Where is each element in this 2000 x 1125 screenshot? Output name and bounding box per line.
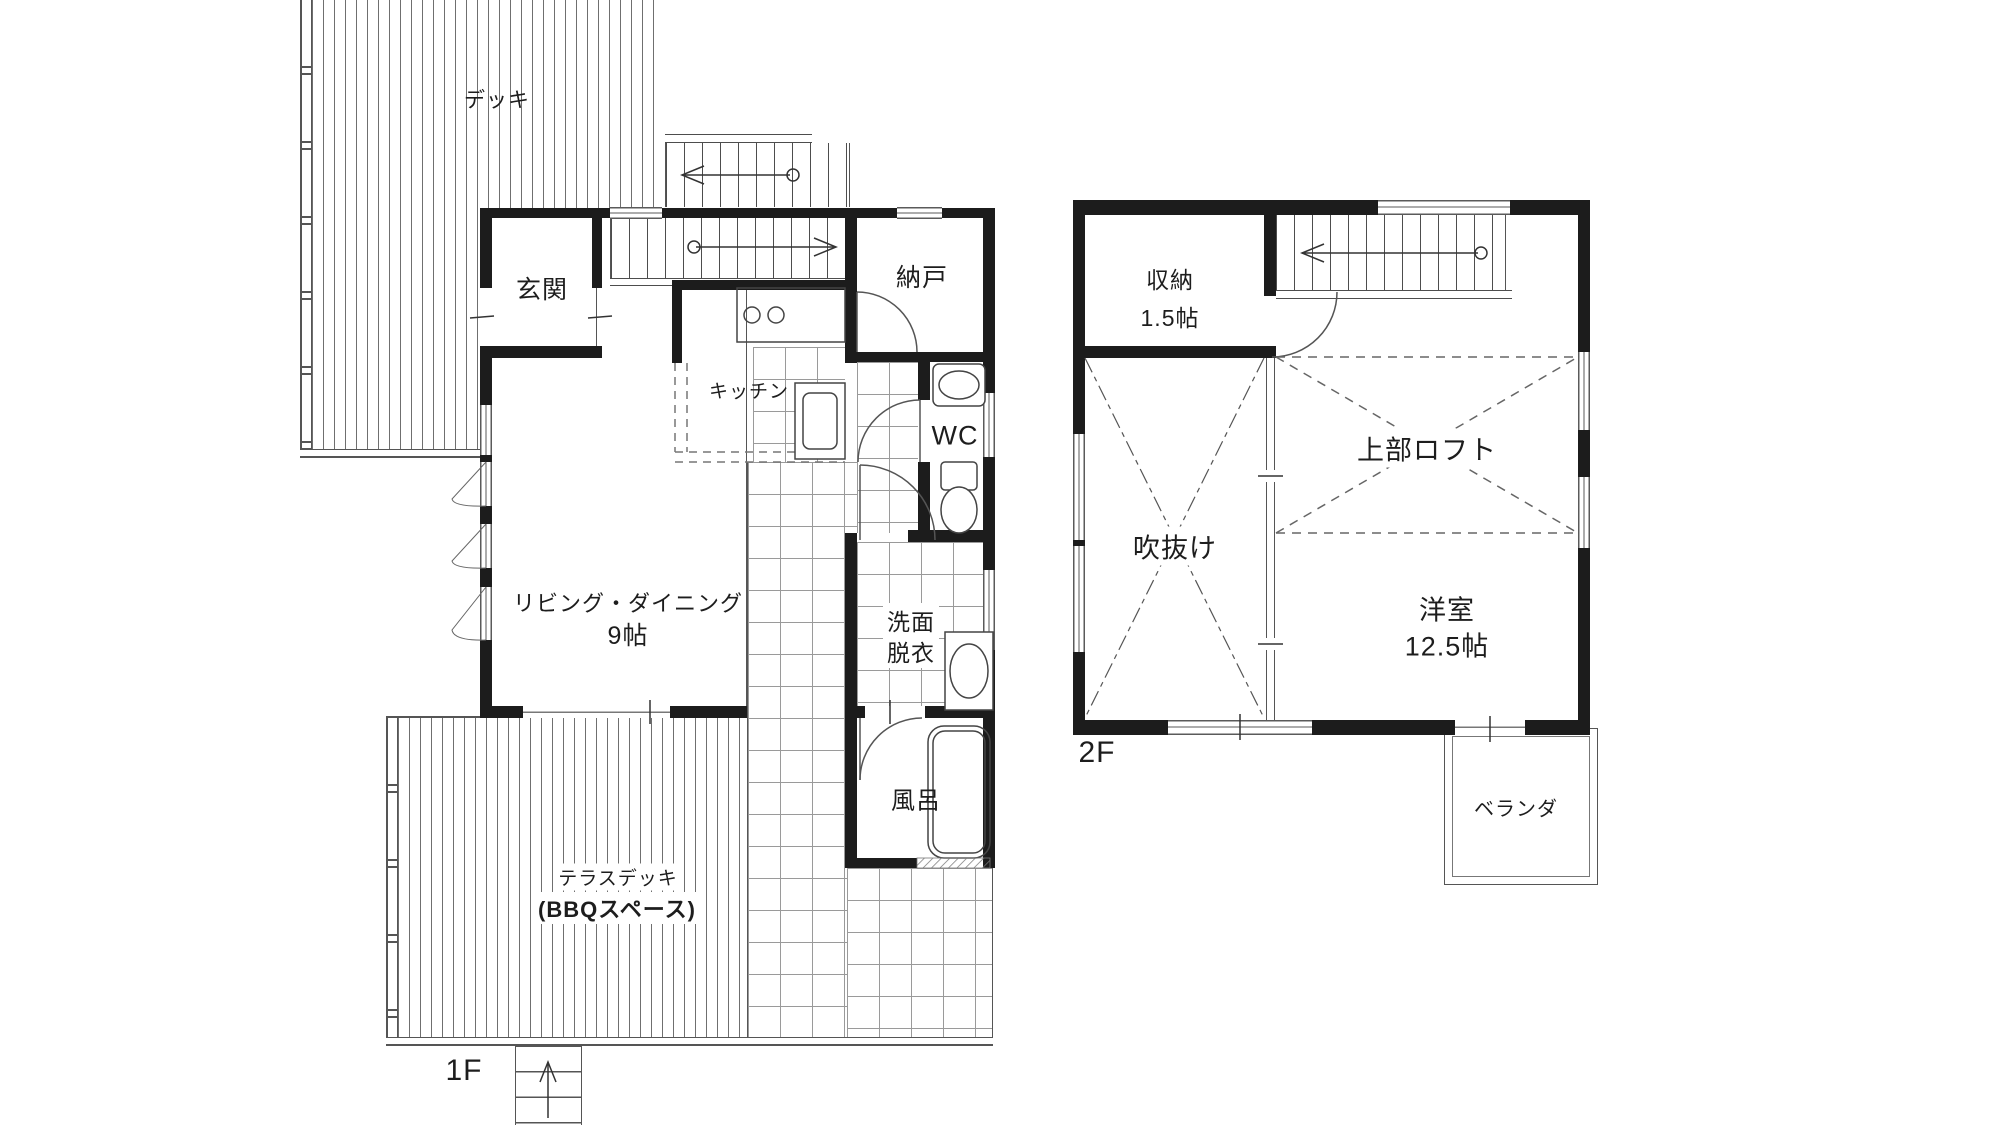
floor-label-2f: 2F [1078,736,1115,770]
door-arc-nando [857,292,917,352]
window-swing-1 [452,462,486,506]
toilet-bowl [941,487,977,533]
floor-plan-canvas: デッキ 玄関 納戸 キッチン WC リビング・ダイニング 9帖 洗面 脱衣 風呂… [0,0,2000,1125]
floor-label-1f: 1F [445,1054,482,1088]
room-label-kitchen: キッチン [709,377,789,404]
room-label-living-size: 9帖 [608,616,649,652]
room-label-washroom-2: 脱衣 [883,634,939,668]
room-label-closet-size: 1.5帖 [1141,299,1200,333]
window-swing-3 [452,587,486,640]
kitchen-burner-1 [744,307,760,323]
room-label-bedroom-size: 12.5帖 [1405,625,1490,664]
room-label-void: 吹抜け [1129,527,1221,566]
window-swing-2 [452,524,486,568]
symbol-overlay [0,0,2000,1125]
room-label-genkan: 玄関 [516,270,568,306]
room-label-loft: 上部ロフト [1353,429,1501,468]
door-arc-2f-stair [1272,292,1337,357]
kitchen-counter [737,288,845,342]
room-label-veranda: ベランダ [1474,793,1558,822]
room-label-wc: WC [932,421,979,452]
door-arc-bath [860,718,922,780]
door-arc-washroom [860,465,935,540]
room-label-deck: デッキ [464,84,530,114]
tick-genkan-right [588,316,612,318]
room-label-closet: 収納 [1146,261,1194,295]
room-label-nando: 納戸 [896,258,948,294]
room-label-bath: 風呂 [891,781,941,816]
room-label-washroom-1: 洗面 [883,603,939,637]
door-arc-wc [858,400,920,462]
room-label-terrace-2: (BBQスペース) [534,892,700,924]
toilet-tank [941,462,977,490]
room-label-living: リビング・ダイニング [513,586,743,618]
room-label-terrace-1: テラスデッキ [554,864,682,891]
room-label-bedroom: 洋室 [1419,589,1475,628]
bath-sill-hatch [917,858,990,868]
tick-genkan-left [470,316,494,318]
kitchen-burner-2 [768,307,784,323]
